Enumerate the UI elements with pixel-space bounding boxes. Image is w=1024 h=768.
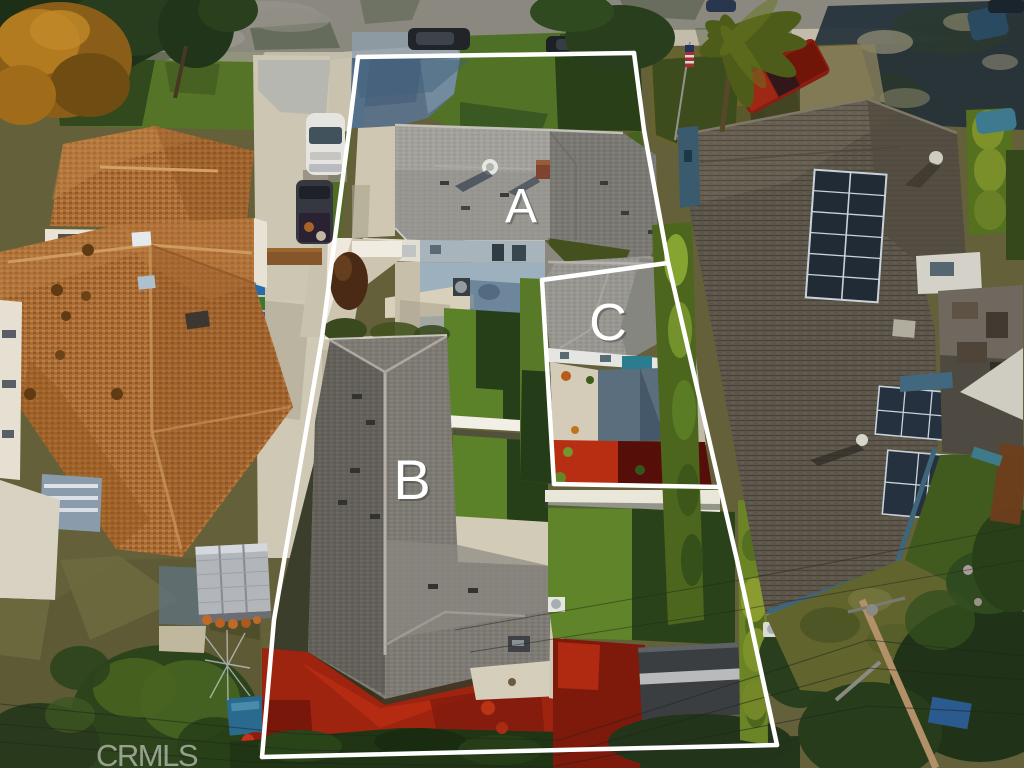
svg-text:C: C — [589, 294, 627, 352]
svg-text:CRMLS: CRMLS — [96, 738, 198, 768]
svg-text:B: B — [393, 448, 430, 511]
svg-text:A: A — [505, 180, 537, 233]
